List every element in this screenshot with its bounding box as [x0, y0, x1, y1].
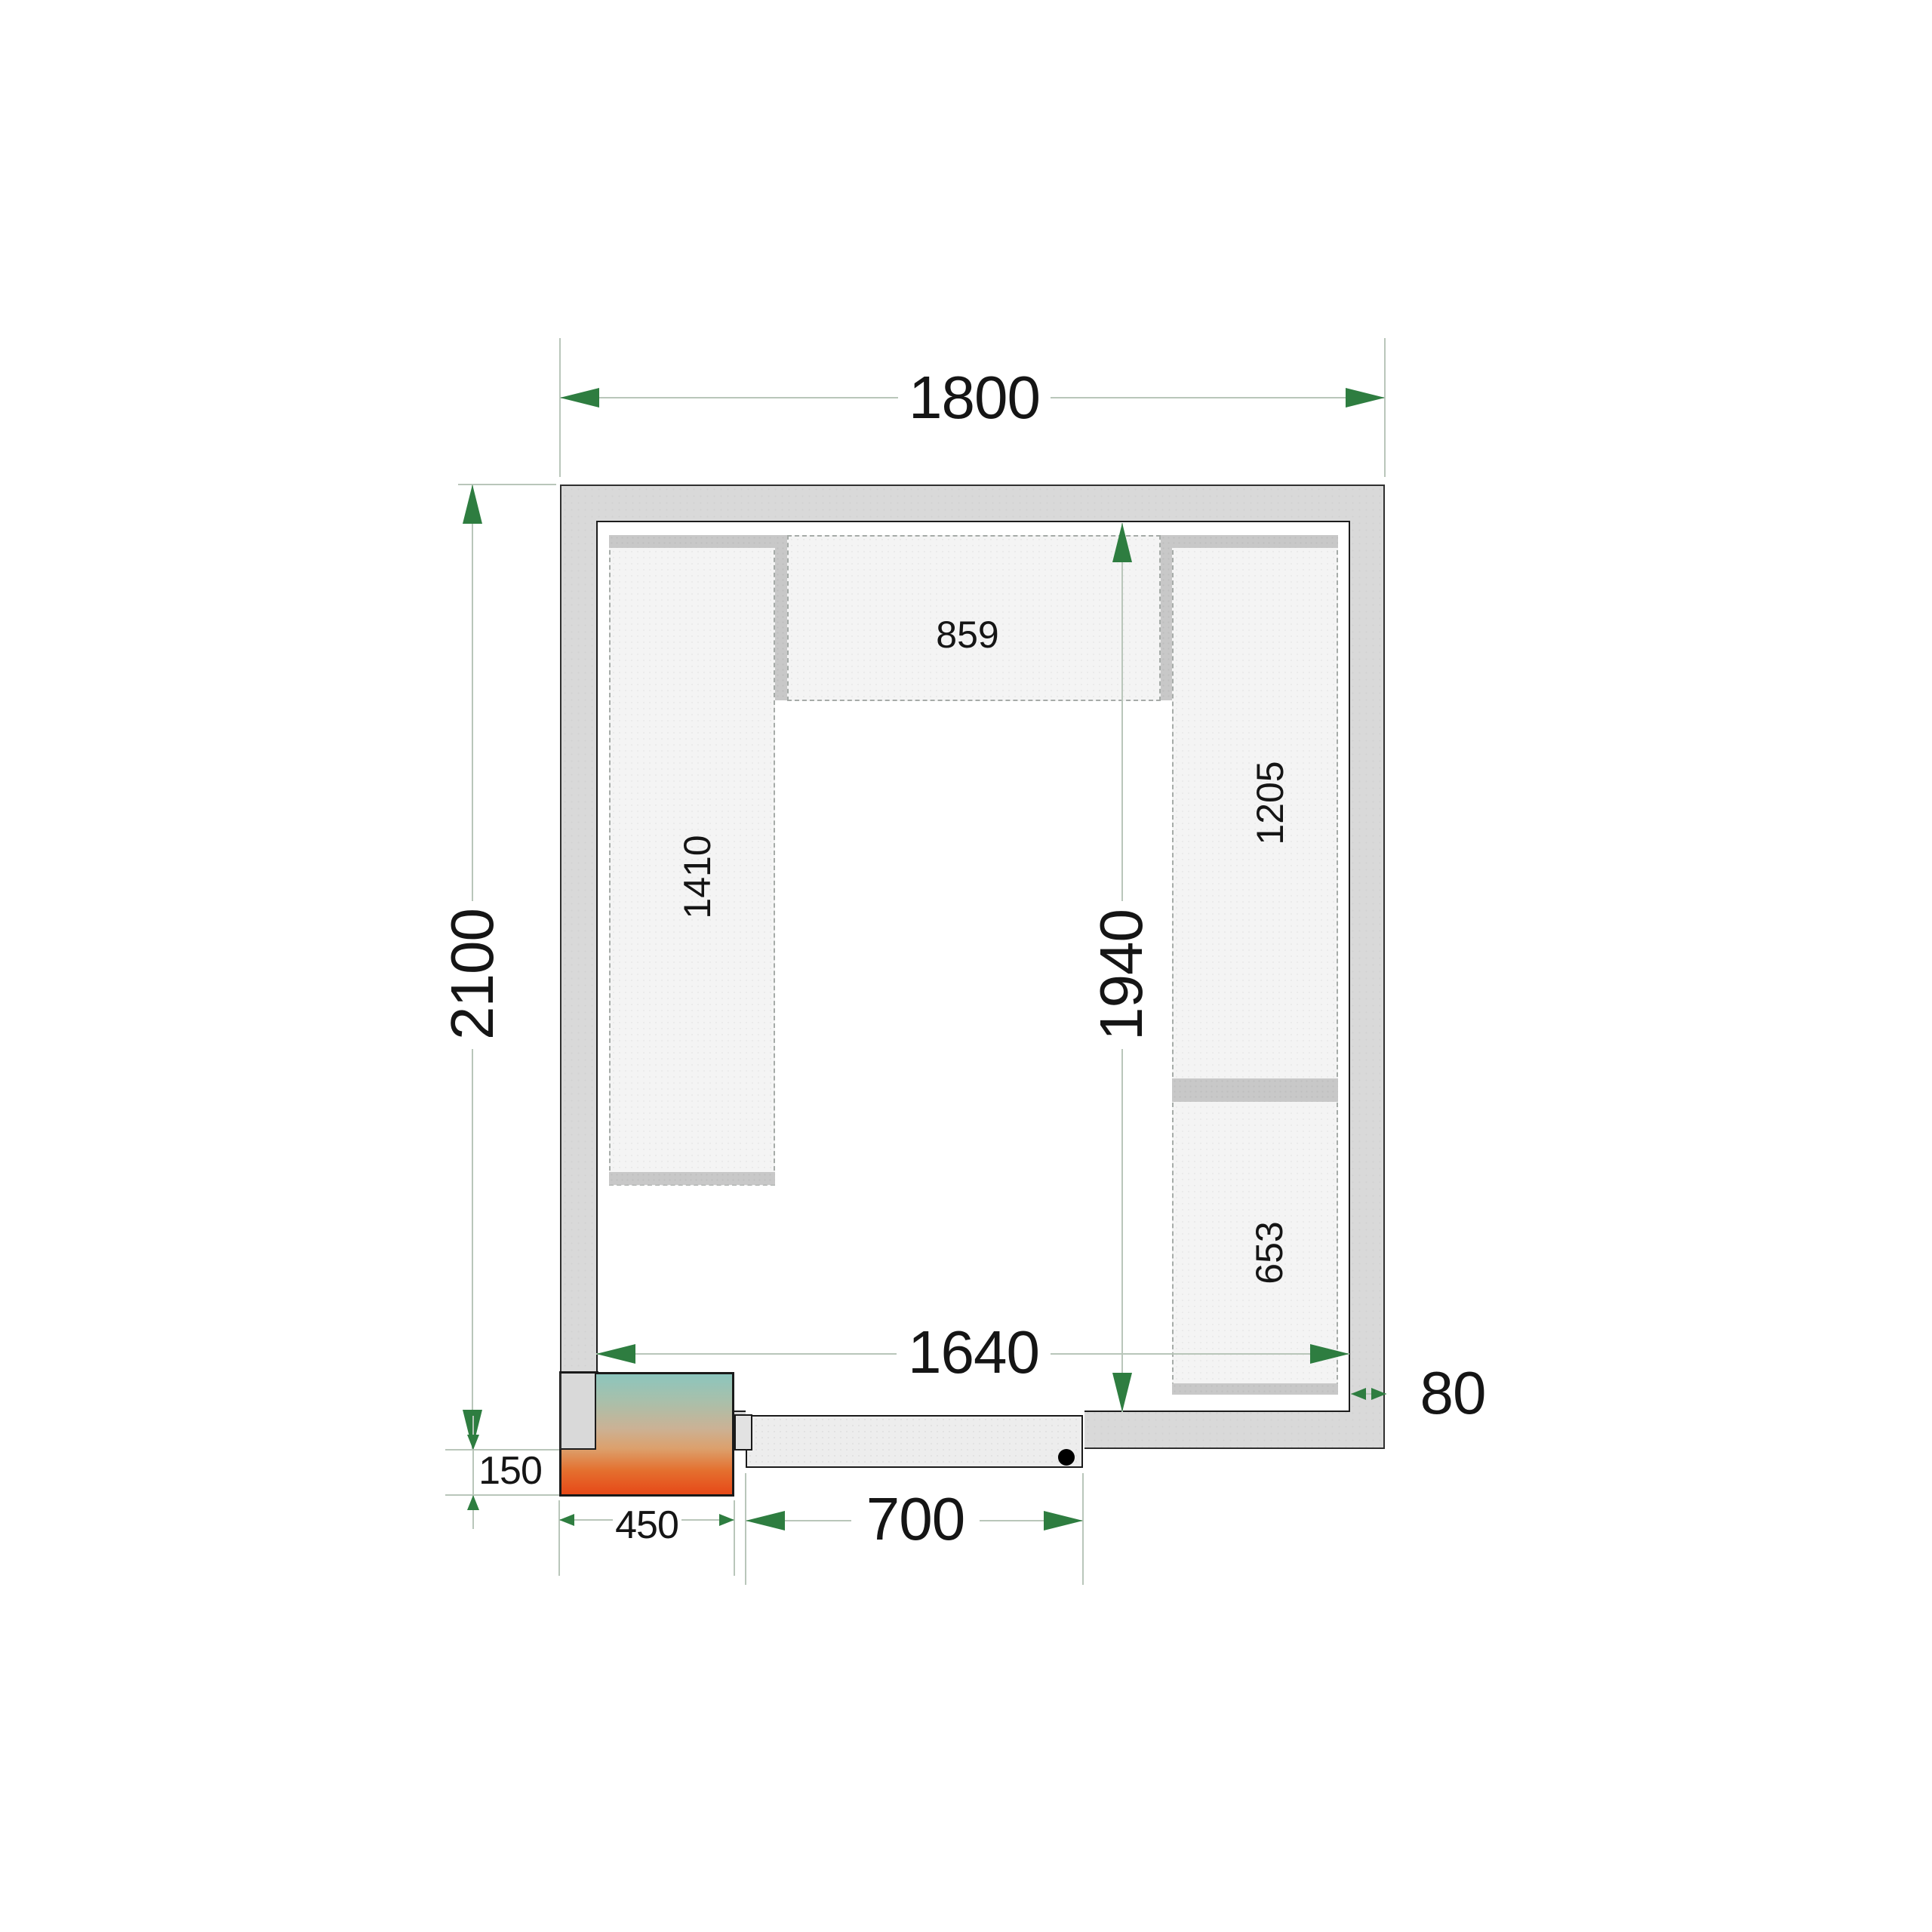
- arrow-150-top: [467, 1435, 479, 1450]
- shelf-right-divider-bar: [1172, 1078, 1338, 1102]
- arrow-1640-left: [596, 1344, 635, 1364]
- shelf-right-bottom-bar: [1172, 1383, 1338, 1395]
- ext-line-1800-right: [1384, 338, 1386, 477]
- door-hinge-dot: [1058, 1449, 1075, 1466]
- floor-plan-drawing: 859 1410 1205 653 1800 2100 1640 1940 80…: [0, 0, 1932, 1932]
- dim-line-1940-a: [1121, 523, 1123, 901]
- dim-450-label: 450: [615, 1503, 678, 1548]
- dim-1940-label: 1940: [1087, 909, 1156, 1041]
- door-frame-step: [734, 1414, 752, 1451]
- dim-line-2100-a: [472, 485, 473, 901]
- arrow-1940-top: [1112, 523, 1132, 562]
- dim-line-2100-b: [472, 1049, 473, 1449]
- arrow-1800-right: [1346, 388, 1385, 408]
- arrow-450-right: [719, 1514, 734, 1526]
- dim-700-label: 700: [866, 1484, 964, 1554]
- dim-line-1640-a: [596, 1353, 897, 1355]
- shelf-right-lower-label: 653: [1247, 1221, 1291, 1284]
- ext-line-450-left: [558, 1500, 560, 1576]
- arrow-700-left: [746, 1511, 785, 1531]
- arrow-80-left: [1351, 1388, 1366, 1400]
- shelf-right-upper-label: 1205: [1248, 761, 1292, 844]
- arrow-150-bottom: [467, 1495, 479, 1510]
- dim-2100-label: 2100: [438, 909, 507, 1040]
- ext-line-1800-left: [559, 338, 561, 477]
- dim-line-150: [472, 1416, 474, 1529]
- arrow-2100-top: [463, 485, 482, 524]
- dim-line-1940-b: [1121, 1049, 1123, 1412]
- dim-line-1640-b: [1051, 1353, 1349, 1355]
- dim-line-1800-a: [560, 397, 898, 398]
- shelf-left-bottom-bar: [609, 1172, 775, 1185]
- arrow-1940-bottom: [1112, 1373, 1132, 1412]
- shelf-right-top-bar: [1166, 535, 1338, 548]
- shelf-top-label: 859: [936, 613, 998, 657]
- arrow-80-right: [1371, 1388, 1386, 1400]
- arrow-1800-left: [560, 388, 599, 408]
- shelf-top-left-bar: [775, 535, 787, 700]
- dim-150-label: 150: [478, 1448, 542, 1494]
- dim-line-1800-b: [1051, 397, 1385, 398]
- dim-1640-label: 1640: [908, 1318, 1039, 1387]
- shelf-left-label: 1410: [675, 835, 719, 918]
- left-wall-overlap: [560, 1372, 596, 1450]
- door-leaf: [746, 1415, 1083, 1468]
- arrow-1640-right: [1310, 1344, 1349, 1364]
- arrow-700-right: [1044, 1511, 1083, 1531]
- dim-80-label: 80: [1420, 1358, 1486, 1428]
- ext-line-150-bottom: [445, 1494, 560, 1496]
- cooling-unit-top-edge: [559, 1371, 598, 1374]
- shelf-left-top-bar: [609, 535, 785, 548]
- ext-line-450-right: [734, 1500, 735, 1576]
- shelf-top-right-bar: [1161, 535, 1172, 700]
- dim-1800-label: 1800: [909, 363, 1040, 432]
- arrow-450-left: [559, 1514, 574, 1526]
